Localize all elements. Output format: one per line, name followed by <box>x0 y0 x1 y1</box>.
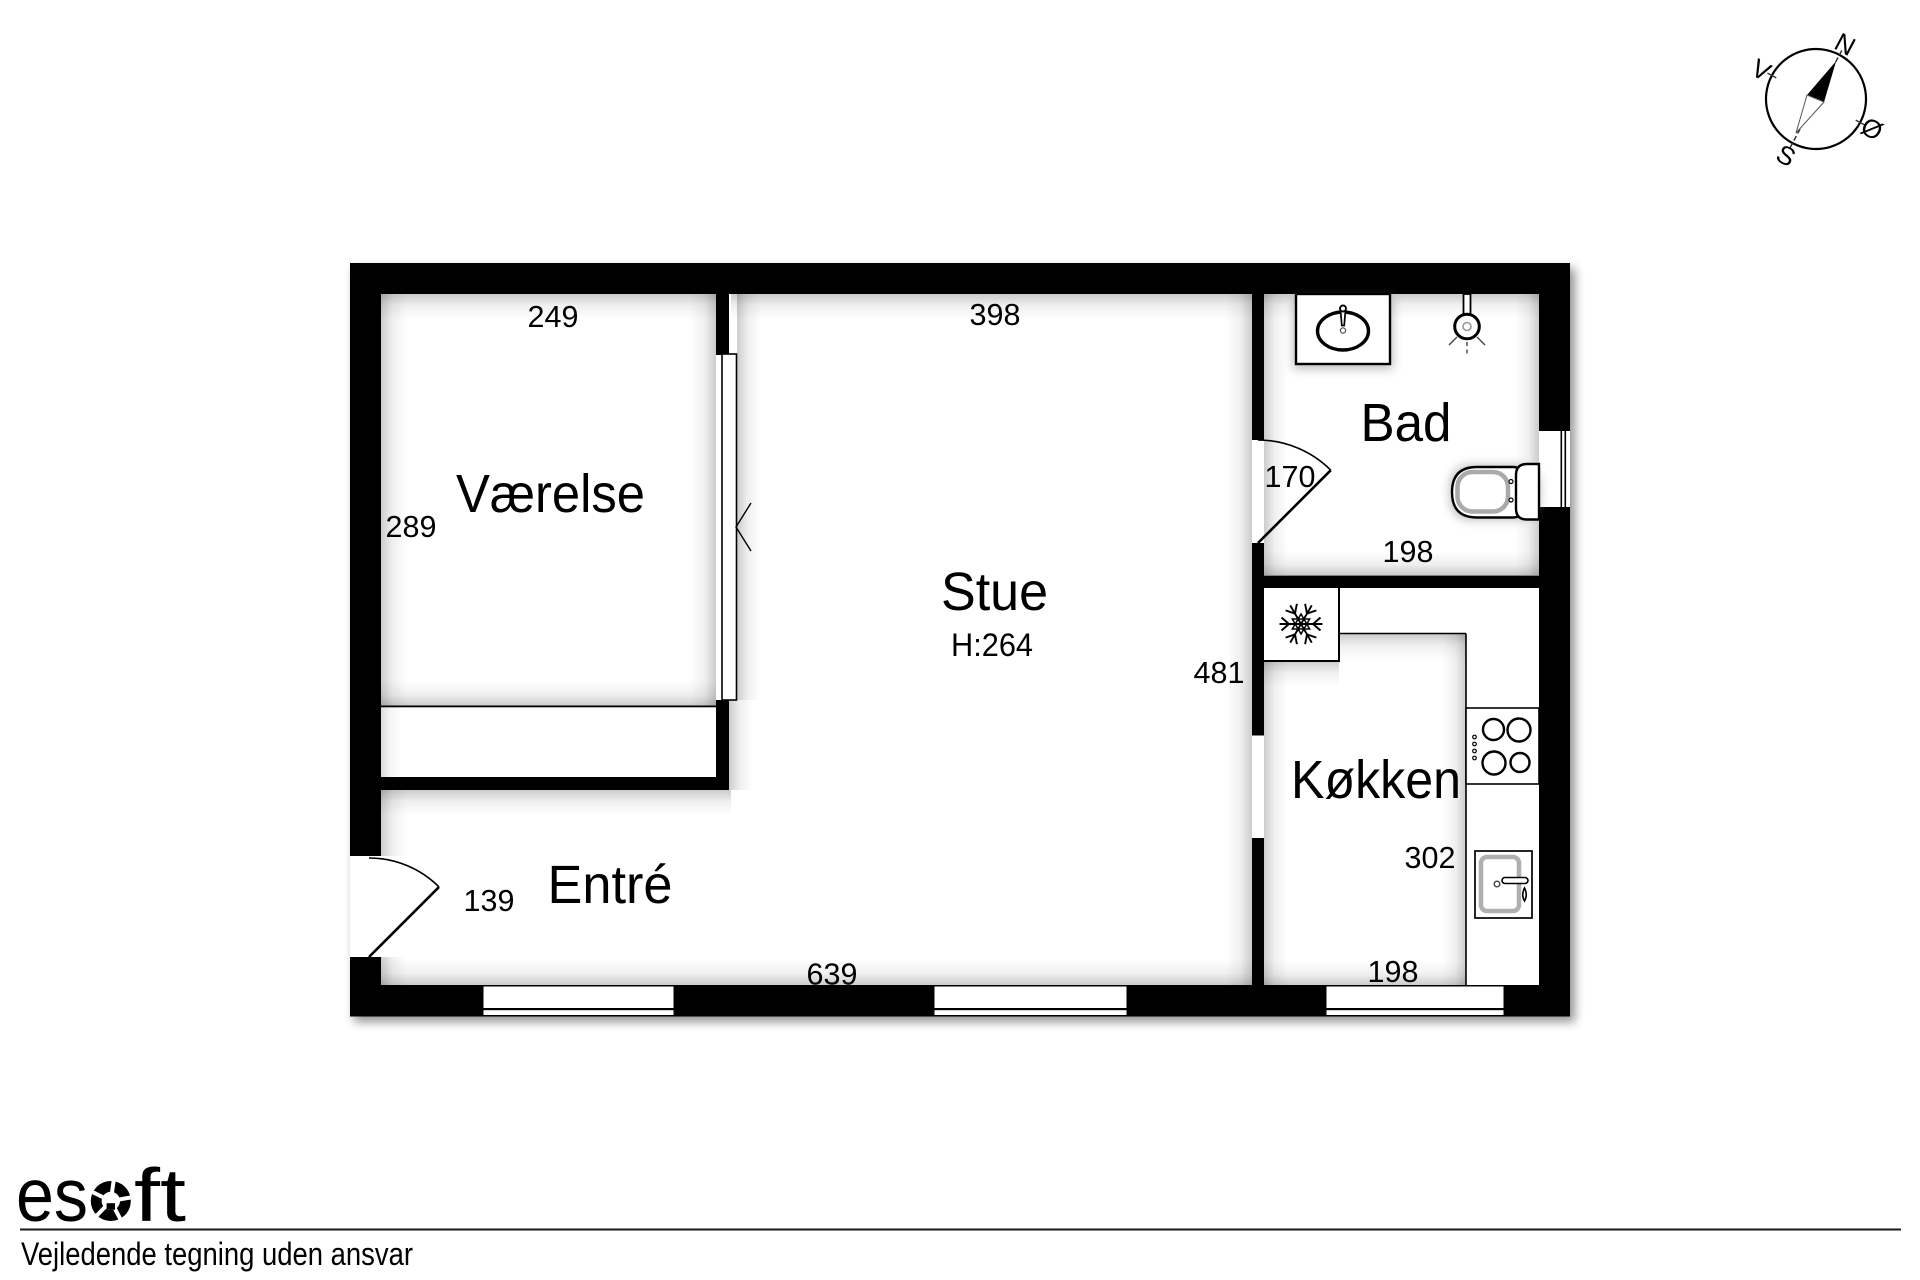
svg-text:249: 249 <box>528 300 579 334</box>
svg-text:Stue: Stue <box>941 562 1048 622</box>
svg-text:170: 170 <box>1265 460 1316 494</box>
svg-text:Entré: Entré <box>548 855 673 915</box>
svg-text:302: 302 <box>1405 841 1456 875</box>
svg-text:639: 639 <box>807 958 858 992</box>
svg-text:H:264: H:264 <box>951 627 1033 663</box>
svg-text:Vejledende tegning uden ansvar: Vejledende tegning uden ansvar <box>21 1236 413 1272</box>
svg-text:ft: ft <box>134 1153 186 1237</box>
svg-text:es: es <box>16 1153 88 1237</box>
svg-text:Køkken: Køkken <box>1291 750 1461 810</box>
svg-text:Værelse: Værelse <box>456 464 645 524</box>
svg-text:Bad: Bad <box>1361 393 1452 453</box>
svg-text:398: 398 <box>970 298 1021 332</box>
svg-text:481: 481 <box>1194 656 1245 690</box>
svg-text:139: 139 <box>464 884 515 918</box>
svg-text:198: 198 <box>1368 955 1419 989</box>
svg-text:289: 289 <box>386 510 437 544</box>
svg-text:198: 198 <box>1383 535 1434 569</box>
